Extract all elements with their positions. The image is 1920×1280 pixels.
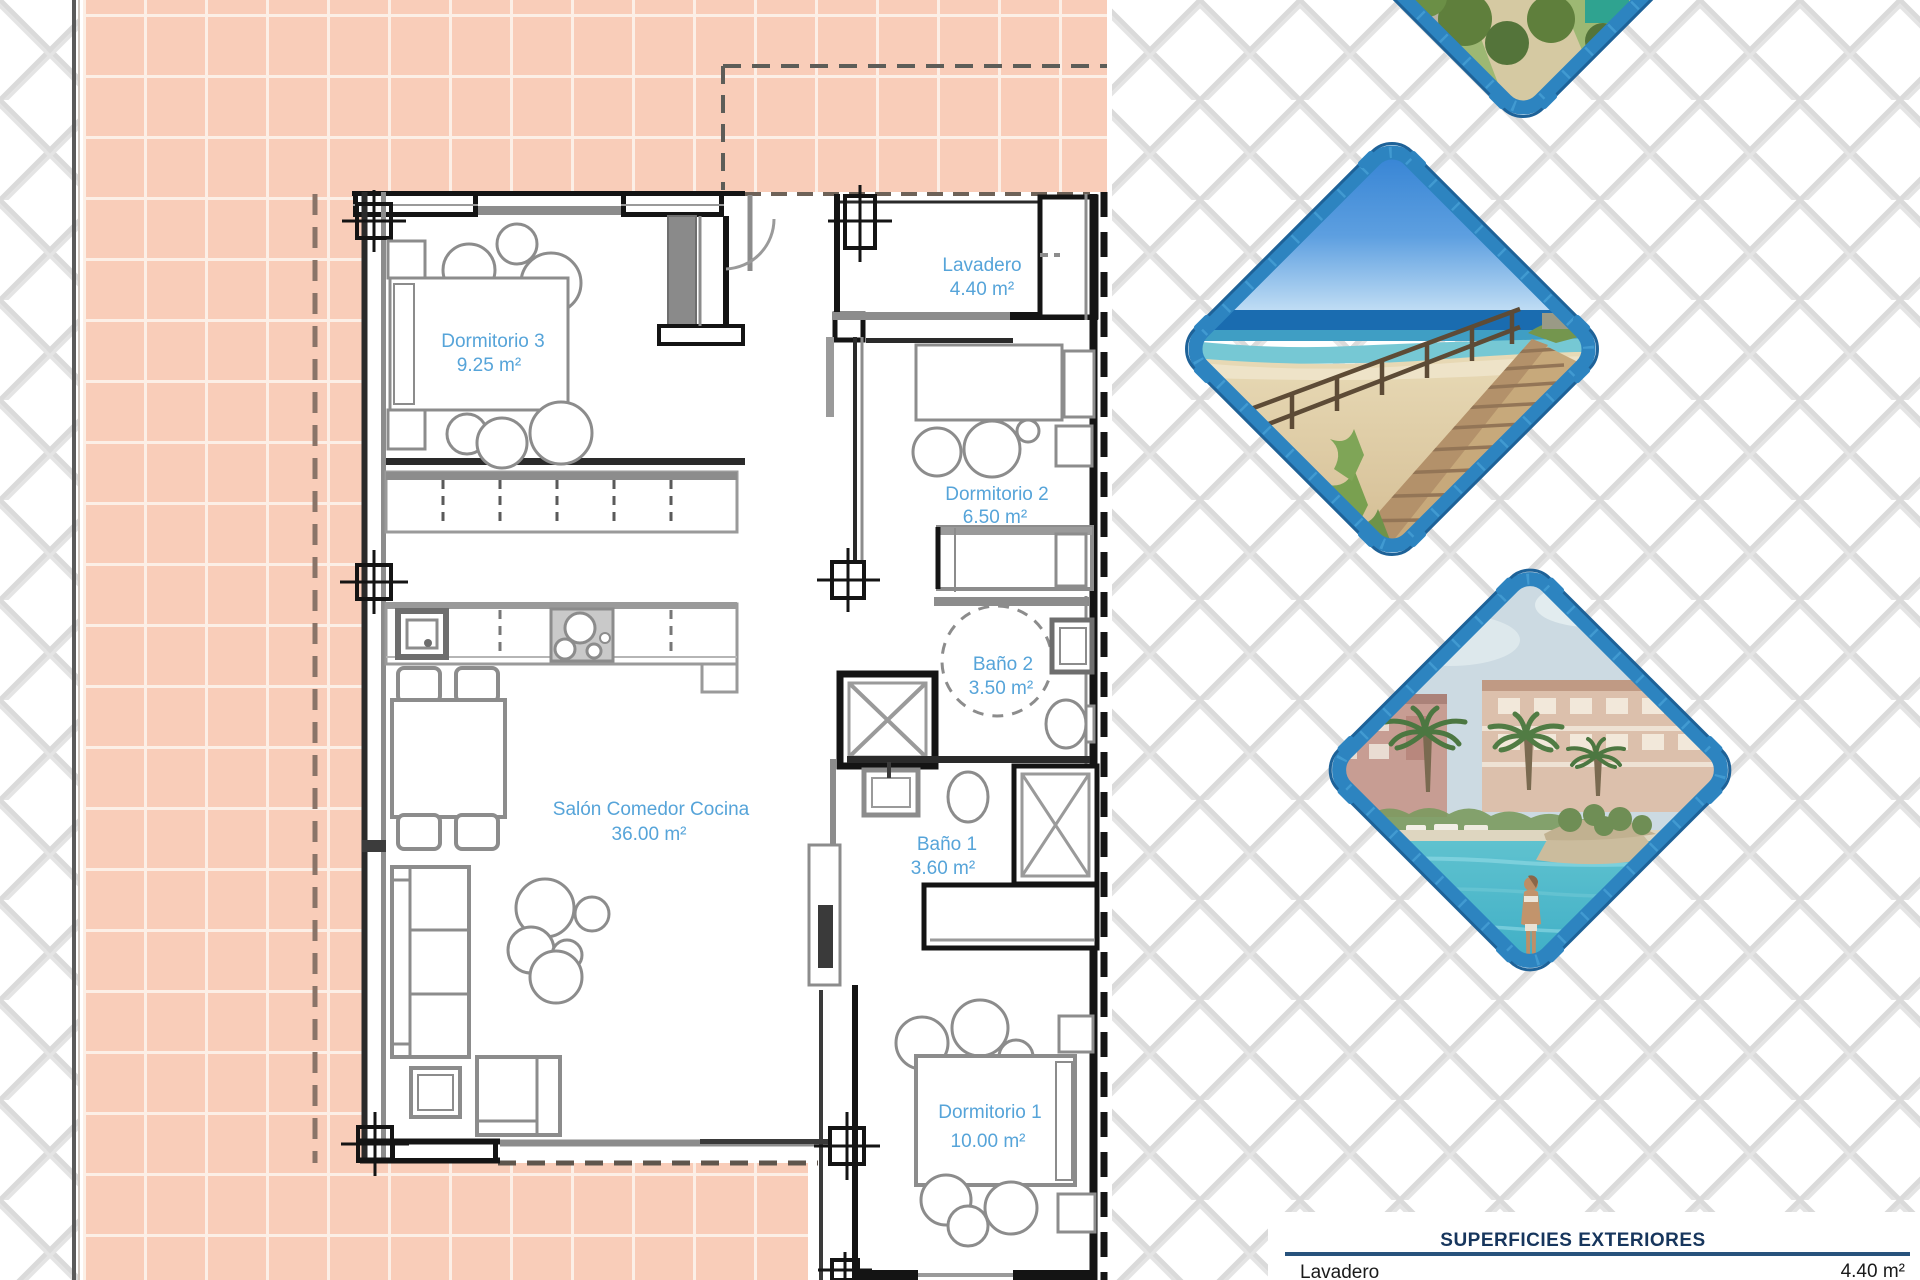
svg-text:Lavadero: Lavadero (1300, 1262, 1379, 1280)
svg-text:10.00 m²: 10.00 m² (951, 1131, 1026, 1152)
svg-text:Dormitorio 1: Dormitorio 1 (938, 1102, 1041, 1123)
svg-text:6.50 m²: 6.50 m² (963, 507, 1027, 528)
svg-text:9.25 m²: 9.25 m² (457, 355, 521, 376)
svg-text:3.60 m²: 3.60 m² (911, 858, 975, 879)
svg-text:Dormitorio 3: Dormitorio 3 (441, 331, 544, 352)
svg-text:Baño 1: Baño 1 (917, 834, 977, 855)
svg-text:4.40 m²: 4.40 m² (950, 279, 1014, 300)
svg-text:Dormitorio 2: Dormitorio 2 (945, 484, 1048, 505)
svg-text:4.40 m²: 4.40 m² (1841, 1261, 1905, 1280)
svg-text:Lavadero: Lavadero (942, 255, 1021, 276)
svg-text:SUPERFICIES EXTERIORES: SUPERFICIES EXTERIORES (1440, 1230, 1705, 1251)
svg-text:36.00 m²: 36.00 m² (612, 824, 687, 845)
svg-text:3.50 m²: 3.50 m² (969, 678, 1033, 699)
svg-text:Baño 2: Baño 2 (973, 654, 1033, 675)
svg-text:Salón Comedor Cocina: Salón Comedor Cocina (553, 799, 750, 820)
